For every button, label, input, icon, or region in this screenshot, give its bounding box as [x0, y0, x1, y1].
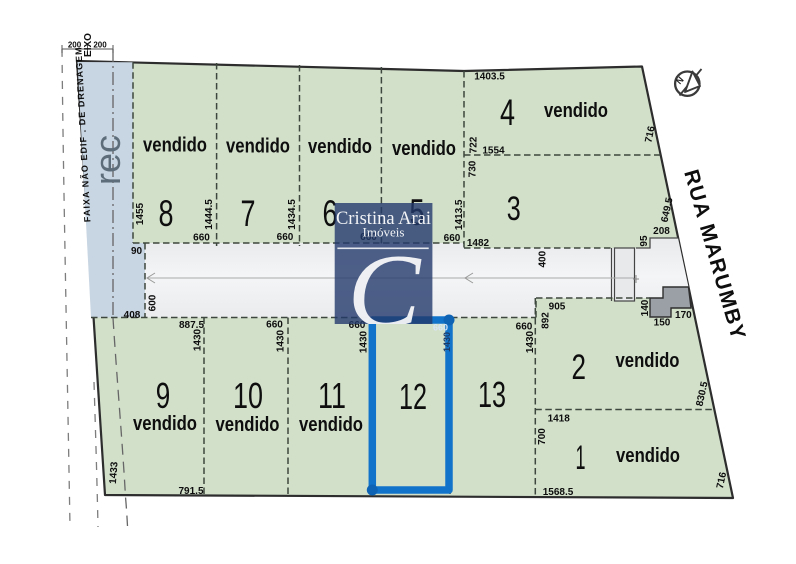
svg-text:905: 905	[549, 302, 566, 313]
svg-text:1430: 1430	[359, 330, 370, 353]
svg-text:660: 660	[277, 232, 294, 243]
svg-text:9: 9	[156, 375, 171, 416]
svg-text:1430: 1430	[276, 329, 287, 352]
svg-text:vendido: vendido	[216, 414, 280, 436]
svg-text:660: 660	[266, 320, 283, 331]
svg-text:EIXO: EIXO	[83, 33, 94, 57]
svg-text:140: 140	[640, 299, 651, 316]
svg-text:11: 11	[318, 375, 346, 416]
svg-text:vendido: vendido	[299, 414, 363, 436]
svg-text:1433: 1433	[108, 461, 121, 484]
svg-text:730: 730	[468, 160, 479, 177]
svg-text:660: 660	[433, 323, 448, 333]
svg-text:10: 10	[233, 375, 263, 416]
svg-text:400: 400	[538, 250, 549, 267]
svg-text:2: 2	[571, 348, 586, 387]
svg-text:vendido: vendido	[544, 100, 608, 122]
svg-text:200: 200	[93, 41, 107, 50]
svg-text:408: 408	[124, 310, 141, 321]
svg-text:95: 95	[639, 235, 650, 247]
svg-text:1413.5: 1413.5	[454, 199, 465, 230]
svg-text:660: 660	[444, 233, 461, 244]
svg-text:vendido: vendido	[392, 138, 456, 160]
svg-text:722: 722	[469, 136, 480, 153]
svg-text:791.5: 791.5	[178, 486, 203, 497]
svg-text:660: 660	[193, 233, 210, 244]
svg-text:208: 208	[653, 226, 670, 237]
svg-text:vendido: vendido	[133, 413, 197, 435]
svg-text:1554: 1554	[482, 146, 505, 157]
svg-text:90: 90	[131, 246, 143, 257]
svg-text:4: 4	[500, 92, 515, 133]
svg-text:1568.5: 1568.5	[543, 487, 574, 498]
svg-text:1434.5: 1434.5	[287, 199, 298, 230]
svg-text:vendido: vendido	[226, 136, 290, 158]
svg-text:170: 170	[675, 310, 692, 321]
svg-text:1403.5: 1403.5	[474, 72, 505, 83]
svg-text:rec: rec	[87, 135, 128, 185]
svg-text:892: 892	[541, 312, 552, 329]
svg-text:1430: 1430	[442, 332, 452, 352]
svg-text:vendido: vendido	[308, 136, 372, 158]
svg-text:700: 700	[537, 428, 548, 445]
svg-text:vendido: vendido	[143, 135, 207, 157]
svg-text:1455: 1455	[135, 202, 146, 225]
svg-text:600: 600	[148, 294, 159, 311]
svg-text:150: 150	[654, 317, 671, 328]
svg-text:13: 13	[478, 374, 506, 415]
svg-text:1482: 1482	[467, 238, 490, 249]
svg-text:vendido: vendido	[616, 445, 680, 467]
svg-text:1: 1	[576, 439, 586, 477]
svg-text:1430: 1430	[193, 328, 204, 351]
svg-text:8: 8	[159, 193, 174, 234]
svg-text:7: 7	[241, 193, 256, 234]
svg-text:1418: 1418	[548, 414, 571, 425]
svg-text:vendido: vendido	[616, 350, 680, 372]
svg-text:3: 3	[507, 190, 521, 228]
svg-text:1430: 1430	[525, 330, 536, 353]
svg-text:1444.5: 1444.5	[204, 199, 215, 230]
svg-text:12: 12	[399, 376, 427, 417]
